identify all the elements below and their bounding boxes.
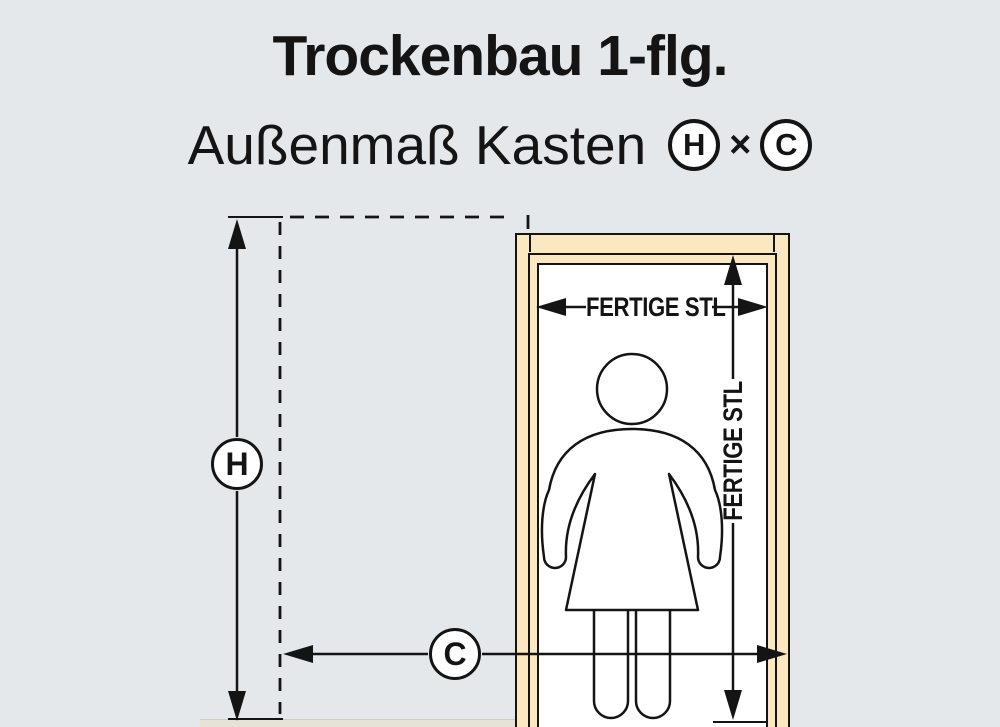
clear-width-label: FERTIGE STL [586,294,714,321]
person-leg-right [636,609,670,718]
person-leg-left [594,609,628,718]
height-circle-label: H [211,438,263,490]
person-figure [542,354,722,718]
frame-seam-lines [530,235,774,252]
clear-height-label: FERTIGE STL [719,385,747,516]
width-circle-label: C [429,628,481,680]
dashed-dimension-outline [280,215,528,714]
person-body [542,429,722,610]
diagram-linework [0,0,1000,727]
person-head [597,354,667,424]
diagram-page: Trockenbau 1-flg. Außenmaß Kasten H × C [0,0,1000,727]
width-dimension-arrow [283,645,787,663]
